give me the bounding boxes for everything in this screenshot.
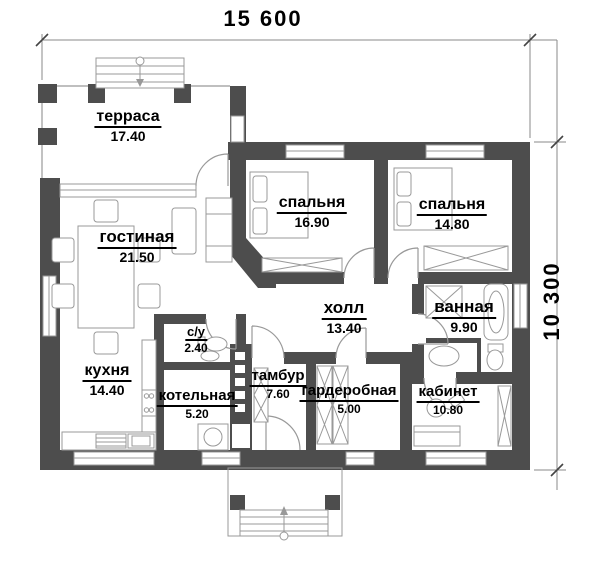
closet-bedroom2 [424,246,508,270]
room-label-office: кабинет 10.80 [417,384,480,417]
room-label-vestibule: тамбур 7.60 [250,368,307,401]
desk [414,426,460,446]
closet-hall [262,258,342,272]
dining-table [52,200,160,354]
porch [228,468,342,540]
tv-unit [206,198,232,262]
boiler-unit [198,424,228,450]
room-label-living: гостиная 21.50 [98,228,177,265]
terrace-stairs [96,57,184,88]
floor-plan: 15 600 10 300 терраса 17.40 гостиная 21.… [0,0,600,571]
dimension-width-label: 15 600 [223,6,302,32]
room-label-hall: холл 13.40 [322,299,367,336]
room-label-kitchen: кухня 14.40 [83,362,132,398]
room-label-wardrobe: гардеробная 5.00 [300,383,399,416]
toilet-bath [487,344,503,370]
floor-plan-drawing [0,0,600,571]
office-wardrobe [498,386,511,446]
room-label-wc: с/у 2.40 [184,325,207,355]
room-label-terrace: терраса 17.40 [94,108,161,144]
room-label-bedroom2: спальня 14.80 [417,196,487,232]
room-label-bedroom1: спальня 16.90 [277,194,347,230]
dimension-height-label: 10 300 [539,261,565,340]
room-label-bathroom: ванная 9.90 [432,298,496,335]
sink-bath [429,346,459,366]
room-label-boiler: котельная 5.20 [157,388,238,421]
